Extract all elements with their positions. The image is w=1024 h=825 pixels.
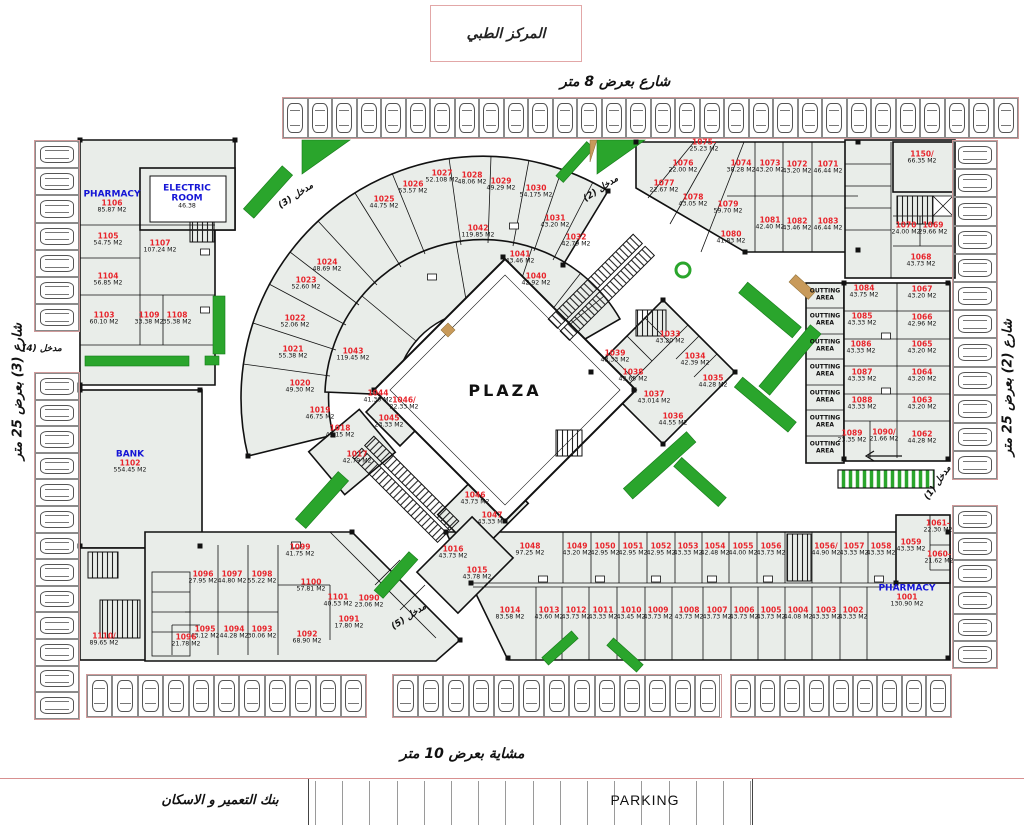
bank-name-label: بنك التعمير و الاسكان bbox=[110, 793, 330, 808]
door-symbol bbox=[882, 388, 891, 394]
door-symbol bbox=[292, 542, 301, 548]
street-label-right: شارع (2) بعرض 25 متر bbox=[1001, 308, 1016, 468]
title-box: المركز الطبي bbox=[430, 5, 582, 62]
band-stall-line bbox=[533, 781, 534, 825]
door-symbol bbox=[875, 576, 884, 582]
plaza-label: PLAZA bbox=[455, 381, 555, 400]
door-symbol bbox=[708, 576, 717, 582]
door-symbol bbox=[428, 274, 437, 280]
bottom-band: بنك التعمير و الاسكان PARKING bbox=[0, 778, 1024, 825]
band-stall-line bbox=[451, 781, 452, 825]
door-symbol bbox=[596, 576, 605, 582]
band-stall-line bbox=[723, 781, 724, 825]
door-symbol bbox=[882, 333, 891, 339]
band-stall-line bbox=[342, 781, 343, 825]
green-ring bbox=[676, 263, 690, 277]
door-symbol bbox=[510, 223, 519, 229]
band-stall-line bbox=[750, 781, 751, 825]
door-symbol bbox=[652, 576, 661, 582]
door-symbol bbox=[764, 576, 773, 582]
street-label-top: شارع بعرض 8 متر bbox=[560, 74, 670, 90]
page-title: المركز الطبي bbox=[467, 26, 546, 42]
floor-plan: المركز الطبي شارع بعرض 8 متر شارع (3) بع… bbox=[0, 0, 1024, 825]
electric-room-box bbox=[150, 176, 226, 222]
band-stall-line bbox=[505, 781, 506, 825]
band-divider bbox=[752, 779, 753, 825]
entrance1-strip bbox=[838, 470, 934, 488]
band-stall-line bbox=[315, 781, 316, 825]
band-stall-line bbox=[560, 781, 561, 825]
door-symbol bbox=[201, 307, 210, 313]
walkway-label: مشاية بعرض 10 متر bbox=[400, 746, 525, 762]
band-stall-line bbox=[397, 781, 398, 825]
door-symbol bbox=[201, 249, 210, 255]
band-stall-line bbox=[478, 781, 479, 825]
door-symbol bbox=[539, 576, 548, 582]
band-stall-line bbox=[369, 781, 370, 825]
band-stall-line bbox=[424, 781, 425, 825]
elevator-box bbox=[933, 196, 953, 216]
plan-drawing bbox=[0, 0, 1024, 825]
parking-label: PARKING bbox=[585, 792, 705, 808]
street-label-left: شارع (3) بعرض 25 متر bbox=[11, 312, 26, 472]
